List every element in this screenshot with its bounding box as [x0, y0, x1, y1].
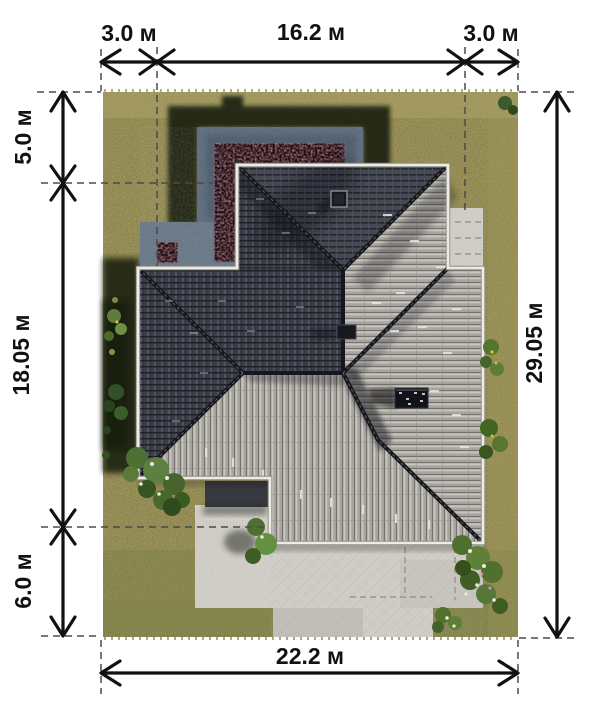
dimension-left: 5.0 м 18.05 м 6.0 м [8, 92, 75, 636]
dimension-label-right: 29.05 м [521, 303, 547, 384]
dimension-label-top-right: 3.0 м [463, 20, 518, 46]
dimension-label-left-middle: 18.05 м [8, 315, 34, 396]
site-plan-drawing: 3.0 м 16.2 м 3.0 м 5.0 м 18.05 м 6.0 м 2… [0, 0, 600, 710]
dimension-label-left-bottom: 6.0 м [10, 553, 36, 608]
dimension-top: 3.0 м 16.2 м 3.0 м [101, 19, 519, 74]
dimension-label-top-left: 3.0 м [101, 20, 156, 46]
site-plan-page: 3.0 м 16.2 м 3.0 м 5.0 м 18.05 м 6.0 м 2… [0, 0, 600, 710]
dimension-label-top-center: 16.2 м [277, 19, 345, 45]
dimension-label-bottom: 22.2 м [276, 643, 344, 669]
dimension-bottom: 22.2 м [101, 643, 518, 685]
dimension-label-left-top: 5.0 м [10, 109, 36, 164]
dimension-right: 29.05 м [521, 92, 569, 637]
